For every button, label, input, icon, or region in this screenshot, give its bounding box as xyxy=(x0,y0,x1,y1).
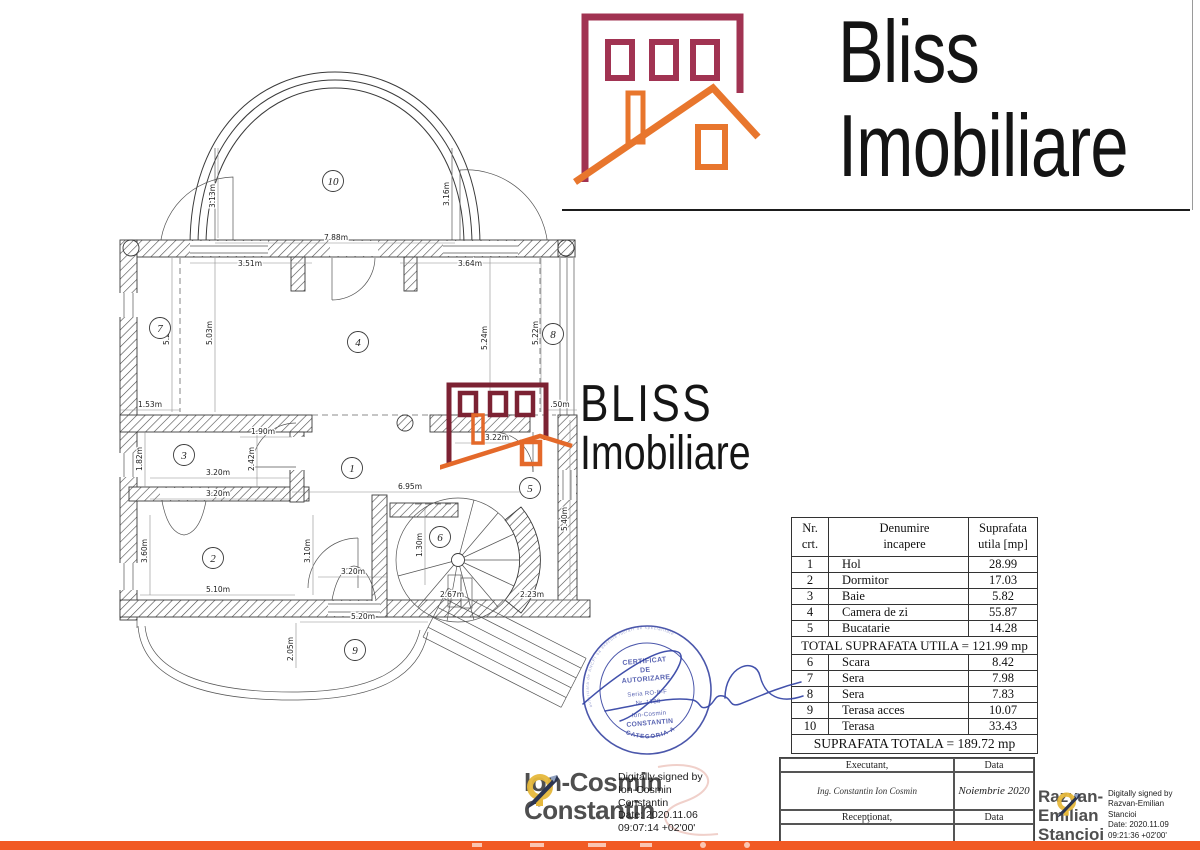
col-header-denumire: Denumire incapere xyxy=(829,518,969,557)
data-value: Noiembrie 2020 xyxy=(954,772,1034,810)
area-table-body: 1Hol28.992Dormitor17.033Baie5.824Camera … xyxy=(792,557,1038,754)
svg-text:CONSTANTIN: CONSTANTIN xyxy=(626,718,673,729)
table-cell: 2 xyxy=(792,573,829,589)
watermark-logo: BLISS Imobiliare xyxy=(440,372,790,480)
data-label-1: Data xyxy=(954,758,1034,772)
page-edge-line xyxy=(1192,0,1193,210)
table-row: 2Dormitor17.03 xyxy=(792,573,1038,589)
table-cell: 7.83 xyxy=(969,687,1038,703)
svg-text:5.24m: 5.24m xyxy=(480,326,489,350)
table-row: 10Terasa33.43 xyxy=(792,719,1038,735)
svg-text:2.23m: 2.23m xyxy=(520,590,544,599)
receptionat-label: Recepţionat, xyxy=(780,810,954,824)
svg-text:5.03m: 5.03m xyxy=(205,321,214,345)
brand-house-icon xyxy=(560,0,820,200)
table-cell: 3 xyxy=(792,589,829,605)
table-cell: Sera xyxy=(829,671,969,687)
table-cell: 5.82 xyxy=(969,589,1038,605)
svg-text:1.30m: 1.30m xyxy=(415,533,424,557)
svg-text:10: 10 xyxy=(328,176,340,188)
svg-text:5.40m: 5.40m xyxy=(560,507,569,531)
signature-left-details: Digitally signed by Ion-Cosmin Constanti… xyxy=(618,771,703,835)
area-table: Nr. crt. Denumire incapere Suprafata uti… xyxy=(791,517,1038,754)
svg-text:1.90m: 1.90m xyxy=(251,427,275,436)
total-general-row: SUPRAFATA TOTALA = 189.72 mp xyxy=(792,735,1038,754)
svg-text:2.67m: 2.67m xyxy=(440,590,464,599)
svg-text:7.88m: 7.88m xyxy=(324,233,348,242)
svg-text:1.53m: 1.53m xyxy=(138,400,162,409)
signature-right-details: Digitally signed by Razvan-Emilian Stanc… xyxy=(1108,789,1172,841)
brand-name-line1: Bliss xyxy=(838,8,979,96)
footer-mark xyxy=(530,843,544,847)
executant-label: Executant, xyxy=(780,758,954,772)
svg-text:4: 4 xyxy=(355,337,361,349)
svg-text:6.95m: 6.95m xyxy=(398,482,422,491)
svg-text:7: 7 xyxy=(157,323,163,335)
svg-text:3.20m: 3.20m xyxy=(206,489,230,498)
table-cell: 1 xyxy=(792,557,829,573)
footer-mark xyxy=(588,843,606,847)
col-header-nr: Nr. crt. xyxy=(792,518,829,557)
watermark-house-icon xyxy=(440,372,580,480)
svg-text:2.05m: 2.05m xyxy=(286,637,295,661)
svg-text:3.20m: 3.20m xyxy=(341,567,365,576)
footer-mark xyxy=(640,843,652,847)
svg-text:5.20m: 5.20m xyxy=(351,612,375,621)
svg-text:6: 6 xyxy=(437,532,443,544)
svg-text:1: 1 xyxy=(349,463,355,475)
brand-divider xyxy=(562,209,1190,211)
area-table-header-row: Nr. crt. Denumire incapere Suprafata uti… xyxy=(792,518,1038,557)
svg-text:3.16m: 3.16m xyxy=(442,182,451,206)
executant-value: Ing. Constantin Ion Cosmin xyxy=(780,772,954,810)
svg-text:1.82m: 1.82m xyxy=(135,447,144,471)
svg-text:3.60m: 3.60m xyxy=(140,539,149,563)
svg-text:2: 2 xyxy=(210,553,216,565)
table-cell: 8.42 xyxy=(969,655,1038,671)
page: { "colors":{"maroon":"#a13352","maroon_d… xyxy=(0,0,1200,850)
svg-text:3.51m: 3.51m xyxy=(238,259,262,268)
table-cell: Terasa xyxy=(829,719,969,735)
svg-text:5: 5 xyxy=(527,483,533,495)
svg-text:3.64m: 3.64m xyxy=(458,259,482,268)
table-cell: Camera de zi xyxy=(829,605,969,621)
table-cell: Dormitor xyxy=(829,573,969,589)
table-cell: Sera xyxy=(829,687,969,703)
handwritten-signature xyxy=(583,651,803,721)
watermark-text-line2: Imobiliare xyxy=(580,430,751,478)
signature-quill-icon xyxy=(521,772,563,812)
footer-bar xyxy=(0,841,1200,850)
svg-text:8: 8 xyxy=(550,329,556,341)
footer-dot xyxy=(744,842,750,848)
table-row: 4Camera de zi55.87 xyxy=(792,605,1038,621)
table-cell: Hol xyxy=(829,557,969,573)
svg-text:AUTORIZARE: AUTORIZARE xyxy=(621,674,670,685)
svg-text:5.22m: 5.22m xyxy=(531,321,540,345)
svg-text:2.42m: 2.42m xyxy=(247,447,256,471)
brand-name-line2: Imobiliare xyxy=(838,102,1128,190)
table-cell: Terasa acces xyxy=(829,703,969,719)
table-cell: Baie xyxy=(829,589,969,605)
table-row: 7Sera7.98 xyxy=(792,671,1038,687)
table-cell: 7.98 xyxy=(969,671,1038,687)
table-cell: Scara xyxy=(829,655,969,671)
table-cell: 10.07 xyxy=(969,703,1038,719)
executant-table: Executant, Data Ing. Constantin Ion Cosm… xyxy=(779,757,1035,845)
svg-text:9: 9 xyxy=(352,645,358,657)
footer-mark xyxy=(472,843,482,847)
svg-text:DE: DE xyxy=(640,667,651,675)
svg-text:CERTIFICAT: CERTIFICAT xyxy=(622,656,667,667)
svg-text:3.20m: 3.20m xyxy=(206,468,230,477)
table-cell: 14.28 xyxy=(969,621,1038,637)
svg-text:5.10m: 5.10m xyxy=(206,585,230,594)
table-row: 8Sera7.83 xyxy=(792,687,1038,703)
signature-quill-icon xyxy=(1053,791,1083,820)
table-cell: 33.43 xyxy=(969,719,1038,735)
watermark-text-line1: BLISS xyxy=(580,378,713,430)
table-row: 3Baie5.82 xyxy=(792,589,1038,605)
table-row: 1Hol28.99 xyxy=(792,557,1038,573)
data-label-2: Data xyxy=(954,810,1034,824)
authorization-stamp: autorizata de ANCPI sa execute lucrari d… xyxy=(575,616,805,764)
table-cell: 17.03 xyxy=(969,573,1038,589)
total-general-row: SUPRAFATA TOTALA = 189.72 mp xyxy=(792,735,1038,754)
svg-text:3.13m: 3.13m xyxy=(208,184,217,208)
col-header-suprafata: Suprafata utila [mp] xyxy=(969,518,1038,557)
total-utila-row: TOTAL SUPRAFATA UTILA = 121.99 mp xyxy=(792,637,1038,655)
brand-logo: Bliss Imobiliare xyxy=(560,0,1200,212)
table-row: 9Terasa acces10.07 xyxy=(792,703,1038,719)
table-row: 5Bucatarie14.28 xyxy=(792,621,1038,637)
table-cell: 28.99 xyxy=(969,557,1038,573)
table-cell: Bucatarie xyxy=(829,621,969,637)
footer-dot xyxy=(700,842,706,848)
table-cell: 55.87 xyxy=(969,605,1038,621)
svg-text:3: 3 xyxy=(180,450,187,462)
table-row: 6Scara8.42 xyxy=(792,655,1038,671)
total-utila-row: TOTAL SUPRAFATA UTILA = 121.99 mp xyxy=(792,637,1038,655)
svg-text:3.10m: 3.10m xyxy=(303,539,312,563)
